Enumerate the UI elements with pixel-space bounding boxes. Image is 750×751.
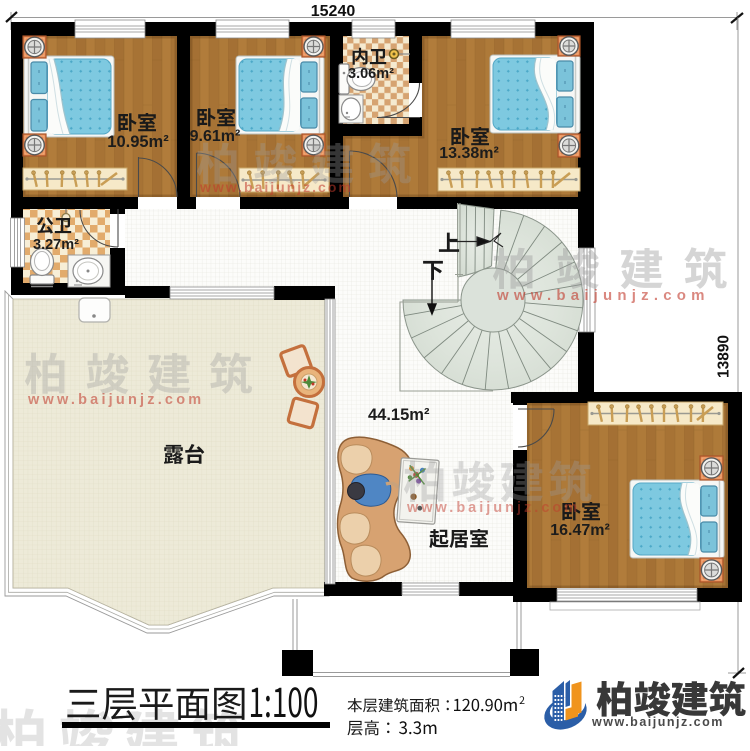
svg-text:www.baijunjz.com: www.baijunjz.com <box>27 392 204 408</box>
svg-text:www.baijunjz.com: www.baijunjz.com <box>591 715 724 729</box>
svg-text:3.27m²: 3.27m² <box>33 237 79 253</box>
svg-text:44.15m²: 44.15m² <box>368 406 430 424</box>
svg-text:www.baijunjz.com: www.baijunjz.com <box>406 500 580 516</box>
svg-text:16.47m²: 16.47m² <box>550 522 610 539</box>
svg-text:9.61m²: 9.61m² <box>190 128 241 145</box>
svg-text:3.06m²: 3.06m² <box>348 66 394 82</box>
svg-text:13.38m²: 13.38m² <box>439 145 499 162</box>
svg-text:15240: 15240 <box>311 3 356 20</box>
svg-text:13890: 13890 <box>716 335 733 378</box>
svg-text:www.baijunjz.com: www.baijunjz.com <box>199 179 353 195</box>
svg-text:www.baijunjz.com: www.baijunjz.com <box>496 287 710 304</box>
svg-text:10.95m²: 10.95m² <box>107 133 169 151</box>
